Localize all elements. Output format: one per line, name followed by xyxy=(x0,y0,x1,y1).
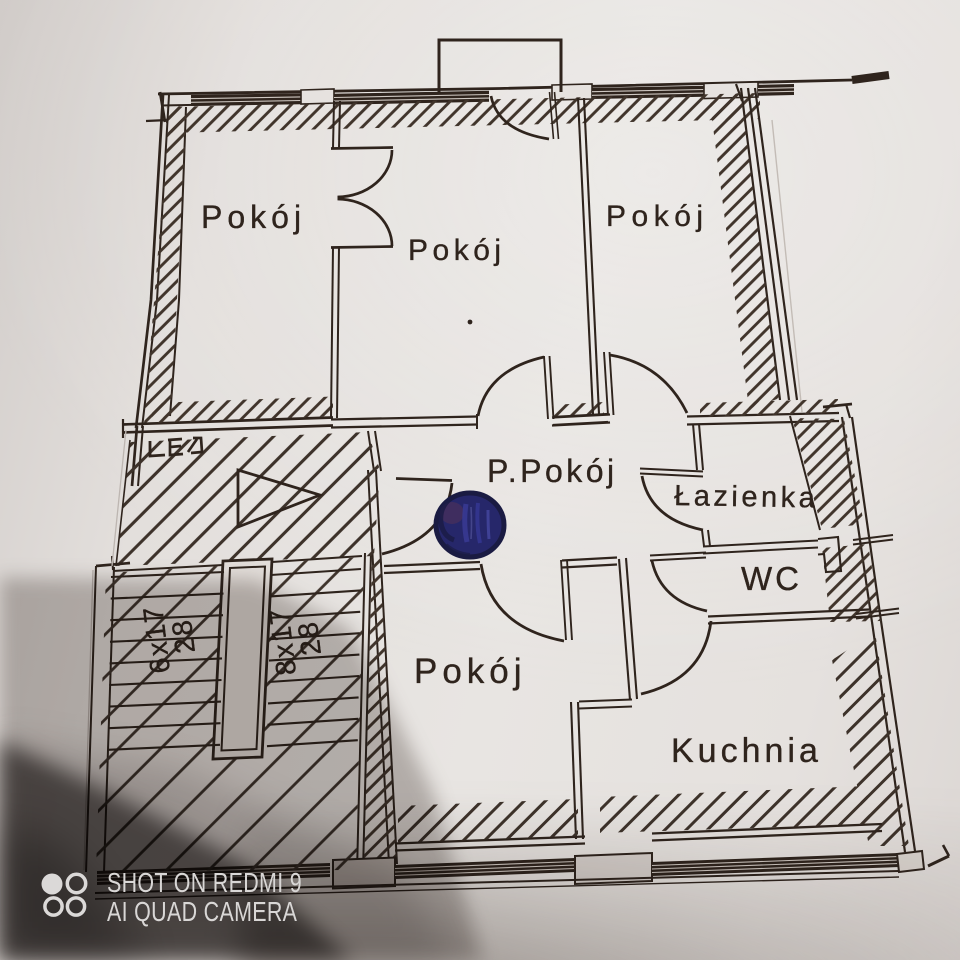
svg-text:Pokój: Pokój xyxy=(606,200,709,233)
svg-text:Kuchnia: Kuchnia xyxy=(671,732,822,770)
svg-text:Pokój: Pokój xyxy=(414,652,527,691)
svg-text:WC: WC xyxy=(741,560,802,597)
svg-text:28: 28 xyxy=(292,619,327,658)
svg-text:P.Pokój: P.Pokój xyxy=(487,453,618,489)
svg-text:28: 28 xyxy=(166,617,201,656)
svg-text:Pokój: Pokój xyxy=(201,199,306,235)
svg-text:Pokój: Pokój xyxy=(408,234,506,267)
svg-text:Łazienka: Łazienka xyxy=(674,480,819,515)
